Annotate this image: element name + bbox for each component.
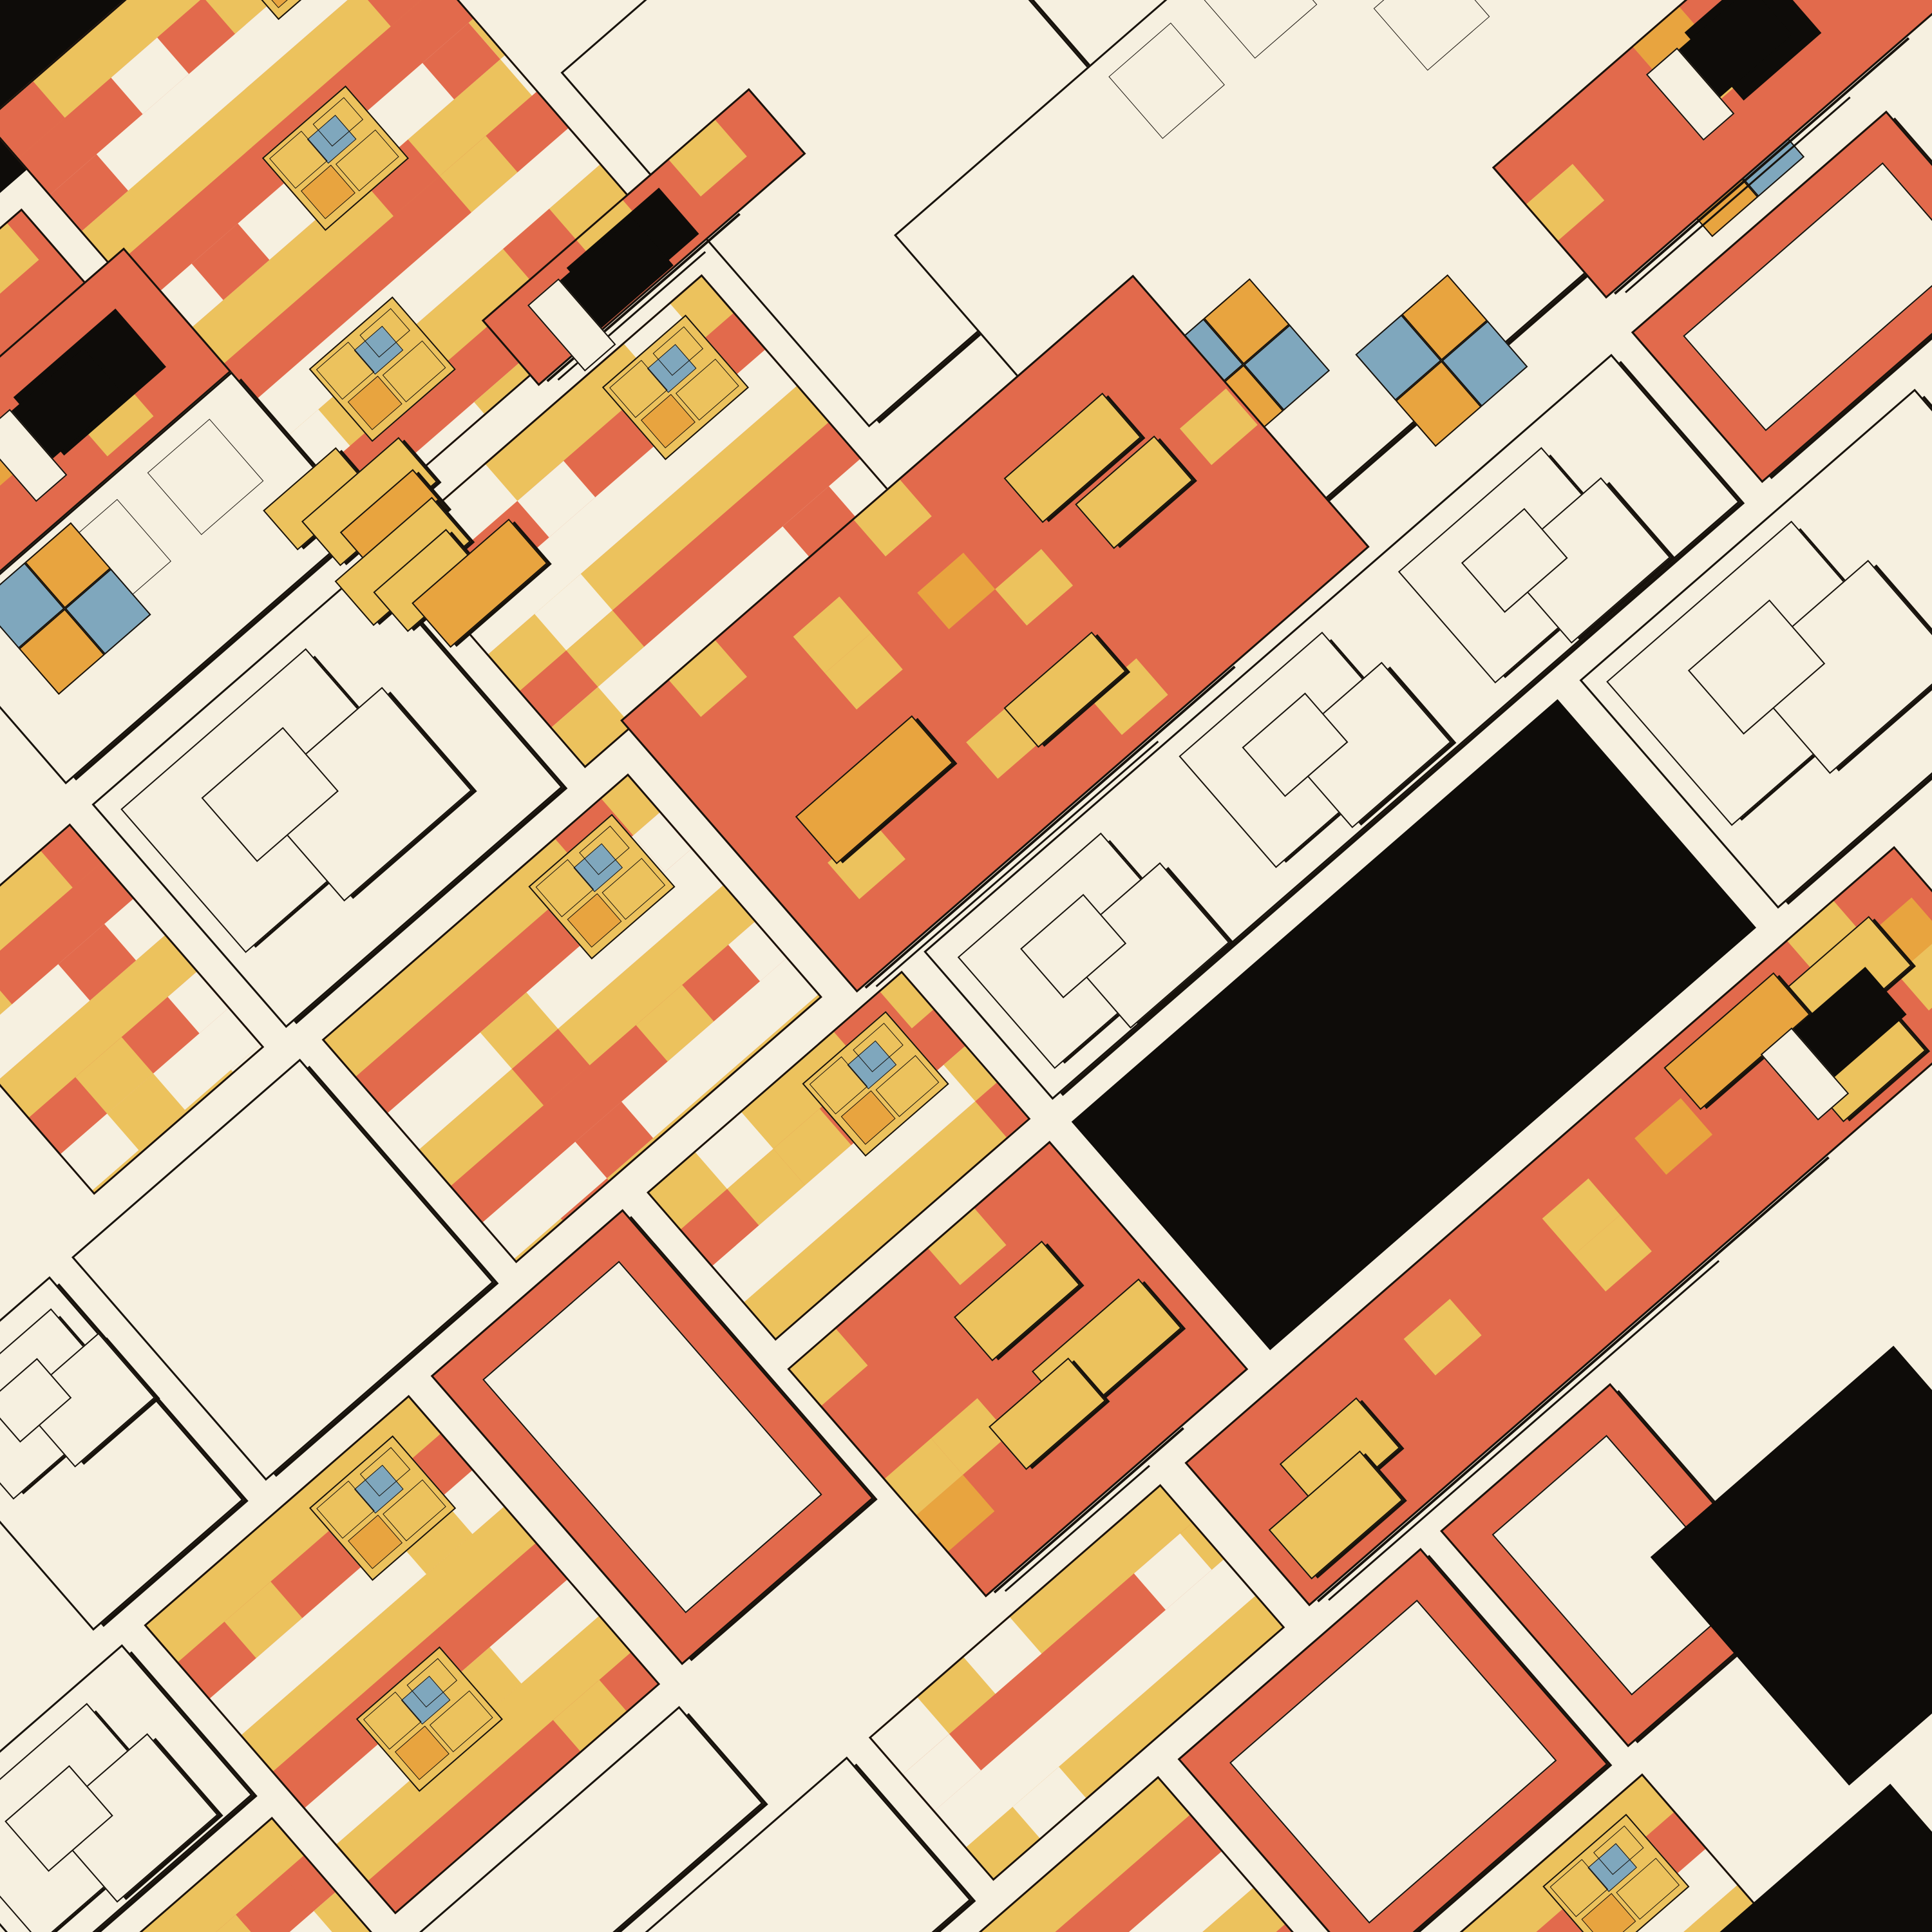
generative-artwork bbox=[0, 0, 1932, 1932]
panel-black-right bbox=[1651, 1346, 1932, 1786]
checker-inset-motif bbox=[1108, 23, 1225, 139]
checker-inset-motif bbox=[147, 419, 264, 535]
frame-inner-court bbox=[1229, 1600, 1557, 1924]
checker-inset-motif bbox=[1201, 0, 1318, 59]
yellow-cell bbox=[0, 223, 39, 300]
yellow-cell bbox=[1404, 1299, 1482, 1376]
yellow-cell bbox=[790, 1329, 868, 1406]
yellow-cell bbox=[1634, 1098, 1712, 1175]
yellow-cell bbox=[917, 553, 995, 629]
checker-inset-motif bbox=[1374, 0, 1490, 71]
panel-plaid-bottom-b bbox=[869, 1484, 1285, 1880]
yellow-cell bbox=[929, 1209, 1007, 1285]
yellow-cell bbox=[995, 549, 1073, 626]
